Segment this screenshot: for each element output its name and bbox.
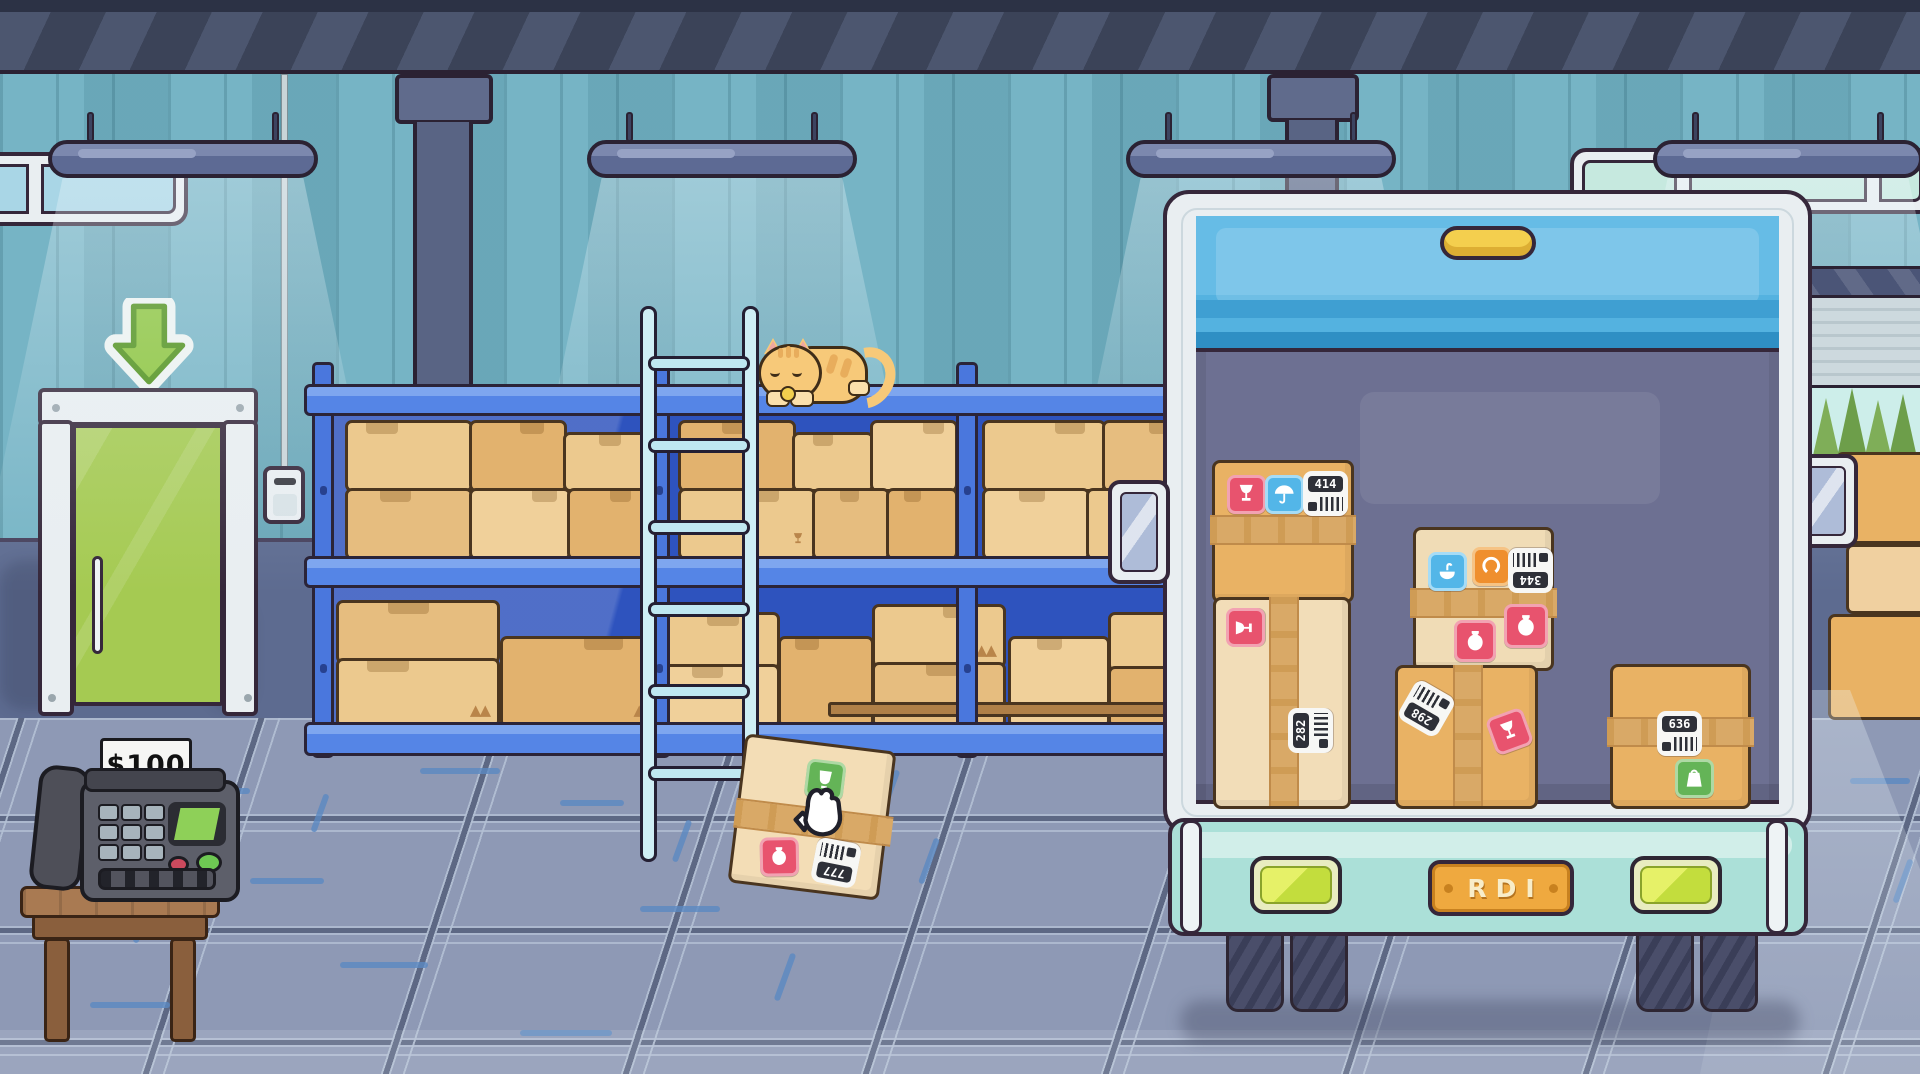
ceiling-light — [1126, 140, 1396, 178]
shelf-post-bolt — [656, 486, 663, 495]
table-leg — [44, 938, 70, 1042]
truck-tire — [1290, 924, 1348, 1012]
cat-eye — [770, 368, 780, 377]
ladder-rung[interactable] — [648, 684, 750, 699]
phone-key[interactable] — [98, 844, 119, 861]
floor-tile-mark — [560, 800, 624, 806]
screw — [48, 694, 56, 702]
ceiling-light — [48, 140, 318, 178]
barcode-label: 298 — [1396, 678, 1457, 739]
phone-key[interactable] — [121, 824, 142, 841]
ceiling-light — [1653, 140, 1920, 178]
cargo-box[interactable]: 282 — [1213, 597, 1351, 809]
floor-tile-mark — [90, 1002, 170, 1008]
shelf-post-bolt — [964, 664, 971, 673]
umbrella-icon — [1265, 475, 1304, 514]
fragile-icon — [1226, 608, 1265, 647]
phone-key[interactable] — [98, 824, 119, 841]
ladder-rung[interactable] — [648, 356, 750, 371]
pine-tree — [1836, 388, 1868, 462]
truck-side-panel — [1108, 480, 1170, 584]
phone-key[interactable] — [98, 804, 119, 821]
vase-icon — [1504, 604, 1548, 648]
shelf-box: ▲ — [500, 636, 654, 728]
tail-light — [1250, 856, 1342, 914]
light-stem — [1692, 112, 1699, 142]
shelf-box — [336, 600, 500, 664]
sleeping-cat[interactable] — [752, 336, 878, 416]
light-stem — [87, 112, 94, 142]
washbasin-icon — [1428, 552, 1467, 591]
bumper-post — [1766, 820, 1788, 934]
pillar — [395, 74, 493, 124]
shelf-box — [345, 488, 473, 560]
fragile-icon — [1485, 707, 1535, 757]
shelf-post-bolt — [320, 486, 327, 495]
shelf-box — [469, 420, 567, 492]
truck-tire — [1700, 924, 1758, 1012]
pillar — [413, 122, 473, 388]
cargo-box[interactable]: 298 — [1395, 665, 1538, 809]
barcode-label: 414 — [1303, 471, 1348, 516]
truck-tire — [1636, 924, 1694, 1012]
shelf-post-bolt — [320, 664, 327, 673]
floor-tile-mark — [340, 962, 428, 968]
table-leg — [170, 938, 196, 1042]
light-stem — [626, 112, 633, 142]
vase-icon — [1454, 620, 1496, 662]
cargo-box[interactable]: 636 — [1610, 664, 1751, 809]
dock-door-header — [1798, 266, 1920, 298]
warehouse-scene: ▲▲▲▲▲▲▲▲ — [0, 0, 1920, 1074]
cargo-box[interactable]: 414 — [1212, 460, 1354, 603]
floor-tile-mark — [250, 878, 324, 884]
ladder-rung[interactable] — [648, 602, 750, 617]
phone-key[interactable] — [121, 844, 142, 861]
ceiling-light — [587, 140, 857, 178]
label-number: 282 — [1293, 713, 1309, 748]
license-plate-text: RDI — [1458, 874, 1543, 903]
shelf-box — [678, 420, 796, 492]
shelf-box — [792, 432, 874, 492]
label-number: 414 — [1308, 476, 1343, 492]
ladder-rung[interactable] — [648, 766, 750, 781]
floor-tile-mark — [640, 906, 720, 912]
shelf-box — [982, 420, 1106, 492]
shelf-box: ▲▲ — [872, 604, 1006, 668]
ladder-rung[interactable] — [648, 438, 750, 453]
pillar — [1267, 74, 1359, 122]
barcode-label: 636 — [1657, 711, 1702, 756]
shelf-box — [469, 488, 571, 560]
shelf-box — [654, 612, 780, 670]
shelf-box — [870, 420, 958, 492]
truck-tire — [1226, 924, 1284, 1012]
cat-bell — [780, 386, 796, 402]
light-stem — [1165, 112, 1172, 142]
tail-light — [1630, 856, 1722, 914]
weight-icon — [1675, 759, 1714, 798]
light-stem — [1877, 112, 1884, 142]
dock-rolling-door — [1798, 298, 1920, 388]
barcode-label: 344 — [1508, 548, 1553, 593]
light-stem — [811, 112, 818, 142]
barcode-label: 777 — [810, 836, 863, 889]
shelf-box — [812, 488, 890, 560]
bumper-post — [1180, 820, 1202, 934]
label-number: 777 — [816, 861, 853, 883]
fragile-icon — [1227, 475, 1266, 514]
cat-eye — [792, 368, 802, 377]
cargo-box[interactable]: 344 — [1413, 527, 1554, 671]
screw — [244, 694, 252, 702]
pine-tree — [1812, 398, 1840, 460]
grab-hand-icon — [790, 778, 850, 844]
ladder-rung[interactable] — [648, 520, 750, 535]
shelf-box: ▲▲ — [336, 658, 500, 728]
phone-vent — [98, 868, 216, 890]
phone-key[interactable] — [144, 844, 165, 861]
shelf-box — [872, 662, 1006, 728]
phone-key[interactable] — [144, 824, 165, 841]
barcode-label: 282 — [1288, 708, 1333, 753]
label-number: 636 — [1662, 716, 1697, 732]
cat-tail-tip — [848, 380, 870, 396]
floor-tile-mark — [420, 768, 500, 774]
license-plate: RDI — [1428, 860, 1574, 916]
phone-paper-slot — [84, 768, 226, 792]
light-stem — [1350, 112, 1357, 142]
light-stem — [272, 112, 279, 142]
pine-tree — [1864, 400, 1892, 460]
ceiling — [0, 0, 1920, 74]
shelf-box — [345, 420, 473, 492]
pallet — [828, 702, 1168, 717]
label-number: 344 — [1513, 572, 1548, 588]
phone-key[interactable] — [144, 804, 165, 821]
shelf-box — [982, 488, 1090, 560]
dock-box — [1846, 544, 1920, 614]
phone-screen — [168, 802, 226, 846]
shelf-box — [886, 488, 958, 560]
truck-door-handle[interactable] — [1440, 226, 1536, 260]
claw-icon — [1472, 547, 1511, 586]
shelf-post-bolt — [964, 486, 971, 495]
shelf-post-bolt — [656, 664, 663, 673]
phone-key[interactable] — [121, 804, 142, 821]
